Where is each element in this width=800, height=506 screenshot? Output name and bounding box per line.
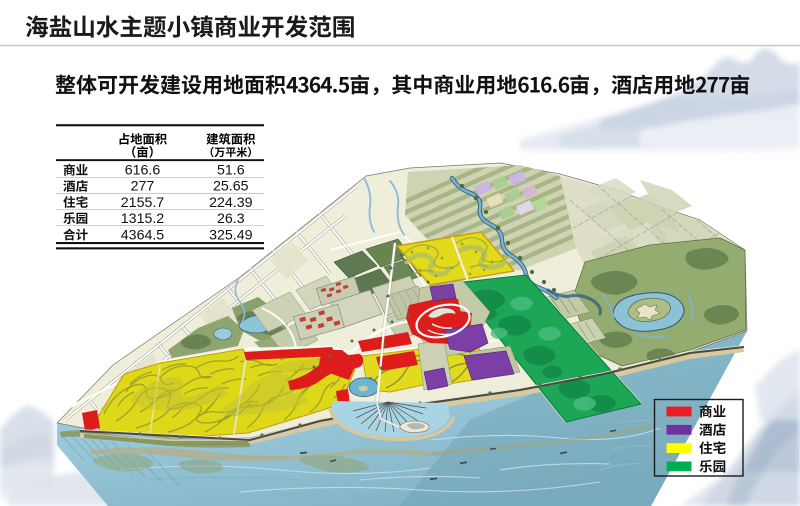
svg-text:51.6: 51.6 — [217, 163, 245, 179]
svg-text:25.65: 25.65 — [213, 179, 249, 195]
svg-text:26.3: 26.3 — [217, 211, 245, 227]
svg-text:1315.2: 1315.2 — [121, 211, 165, 227]
svg-text:224.39: 224.39 — [209, 195, 253, 211]
svg-text:616.6: 616.6 — [125, 163, 161, 179]
svg-text:2155.7: 2155.7 — [121, 195, 165, 211]
svg-text:4364.5: 4364.5 — [121, 227, 165, 243]
svg-text:277: 277 — [131, 179, 155, 195]
svg-text:325.49: 325.49 — [209, 227, 253, 243]
